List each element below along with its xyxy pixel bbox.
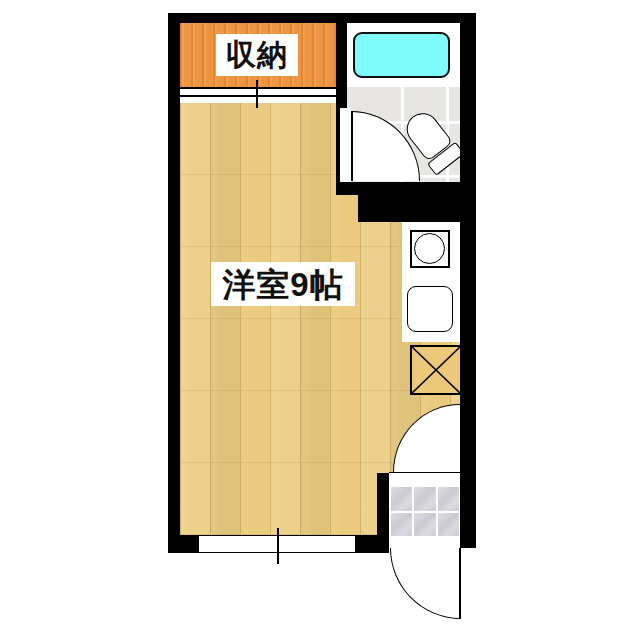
bathtub xyxy=(353,32,450,78)
stove xyxy=(410,230,450,268)
appliance-x-icon xyxy=(412,347,460,393)
kitchen-sink xyxy=(407,286,453,332)
entrance-tile xyxy=(438,513,459,537)
wall-entrance-left xyxy=(377,473,389,548)
closet-door-tick xyxy=(256,80,258,108)
floor-plan: 収納 洋室9帖 xyxy=(0,0,640,640)
closet-door-rail-line xyxy=(180,95,336,97)
closet-sliding-door xyxy=(180,87,336,103)
entrance-tile xyxy=(391,513,412,537)
wall-bathroom-bottom xyxy=(336,182,476,195)
entrance-tile xyxy=(391,487,412,511)
wall-top xyxy=(168,13,476,23)
room-label: 洋室9帖 xyxy=(211,262,355,306)
entrance-exterior-door-swing xyxy=(390,548,461,619)
closet-label: 収納 xyxy=(216,34,298,76)
entrance-tiles xyxy=(389,485,461,538)
entrance-tile xyxy=(438,487,459,511)
wall-right xyxy=(460,13,476,548)
entrance-outer-step xyxy=(389,538,461,548)
entrance-tile xyxy=(414,513,435,537)
wall-service-block xyxy=(358,195,476,222)
stove-burner-icon xyxy=(414,233,445,264)
window-tick xyxy=(277,528,279,564)
appliance-space xyxy=(410,345,462,395)
wall-bottom-left xyxy=(168,535,198,553)
entrance-step xyxy=(389,472,461,485)
entrance-tile xyxy=(414,487,435,511)
wall-left xyxy=(168,13,180,553)
